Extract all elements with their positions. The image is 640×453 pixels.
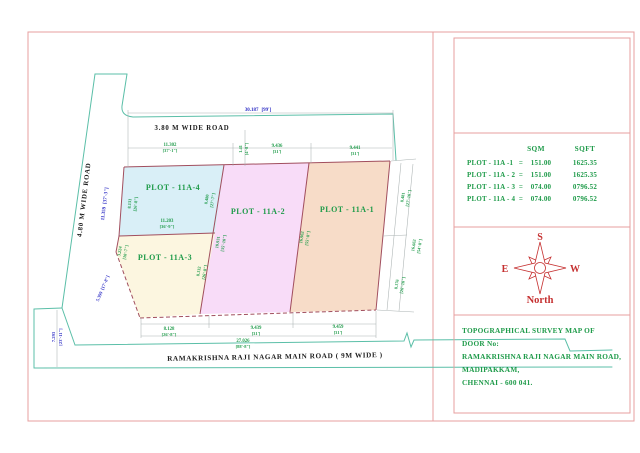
panel-empty-box [454,38,630,133]
left-road-label: 4.80 M WIDE ROAD [76,162,92,237]
plot-11a-4-label: PLOT - 11A-4 [146,183,200,192]
table-header-sqm: SQM [527,144,545,153]
svg-text:[4'-8"]: [4'-8"] [244,142,249,155]
svg-text:PLOT - 11A - 4: PLOT - 11A - 4 [467,195,515,203]
plot-11a-2-label: PLOT - 11A-2 [231,207,285,216]
table-row: PLOT - 11A - 3 = 074.00 0796.52 [467,183,597,191]
dim-right-bottom: 8.176 [26'-10"] [393,275,407,294]
dim-bot-total-ft: [88'-8"] [236,344,251,349]
dim-top-c-ft: [31'] [351,151,360,156]
svg-text:151.00: 151.00 [531,159,552,167]
table-header-sqft: SQFT [575,144,596,153]
compass-north-label: North [527,295,554,306]
title-line-1: TOPOGRAPHICAL SURVEY MAP OF [462,326,595,335]
dim-top-a-ft: [37'-1"] [163,148,178,153]
svg-text:0796.52: 0796.52 [573,183,597,191]
table-row: PLOT - 11A - 4 = 074.00 0796.52 [467,195,597,203]
svg-text:151.00: 151.00 [531,171,552,179]
survey-map-sheet: 3.80 M WIDE ROAD 4.80 M WIDE ROAD RAMAKR… [0,0,640,453]
dim-left-road: 11.359[37'-3"] [101,187,110,221]
dim-right-mid: 16.662 [54'-8"] [410,237,423,254]
dim-p4-bottom-ft: [36'-9"] [160,224,175,229]
area-table: SQM SQFT PLOT - 11A -1 = 151.00 1625.35 … [467,144,597,203]
dim-bot-c-ft: [31'] [334,330,343,335]
table-row: PLOT - 11A - 2 = 151.00 1625.35 [467,171,597,179]
dim-top-b-ft: [31'] [273,149,282,154]
compass-right-label: W [570,264,580,275]
compass-hub [535,263,546,274]
svg-text:0796.52: 0796.52 [573,195,597,203]
svg-text:=: = [519,171,523,179]
svg-text:1625.35: 1625.35 [573,171,597,179]
svg-text:PLOT - 11A - 2: PLOT - 11A - 2 [467,171,515,179]
svg-text:=: = [519,195,523,203]
dim-top-total: 30.187[99'] [245,108,272,113]
svg-text:[23'-11"]: [23'-11"] [58,328,63,346]
compass-top-label: S [537,232,543,243]
svg-text:7.293: 7.293 [51,331,56,342]
svg-text:1625.35: 1625.35 [573,159,597,167]
svg-text:[54'-8"]: [54'-8"] [416,238,423,254]
dim-top-gap: 1.41 [4'-8"] [238,142,249,155]
dim-bot-a-ft: [26'-8"] [162,332,177,337]
svg-text:[26'-10"]: [26'-10"] [399,276,407,294]
dim-right-top: 8.481 [27'-10"] [399,188,413,207]
title-line-4: MADIPAKKAM, [462,365,520,374]
svg-text:074.00: 074.00 [531,195,552,203]
dim-bot-b-ft: [31'] [252,331,261,336]
svg-text:PLOT - 11A - 3: PLOT - 11A - 3 [467,183,515,191]
svg-text:=: = [519,159,523,167]
svg-text:8.131: 8.131 [127,198,133,208]
svg-text:074.00: 074.00 [531,183,552,191]
top-road-label: 3.80 M WIDE ROAD [155,125,230,132]
svg-text:PLOT - 11A -1: PLOT - 11A -1 [467,159,514,167]
bottom-road-label: RAMAKRISHNA RAJI NAGAR MAIN ROAD ( 9M WI… [167,351,383,363]
table-row: PLOT - 11A -1 = 151.00 1625.35 [467,159,597,167]
plot-11a-1-label: PLOT - 11A-1 [320,205,374,214]
svg-text:1.41: 1.41 [238,145,243,153]
svg-text:=: = [519,183,523,191]
title-line-2: DOOR No: [462,339,499,348]
dim-divider-2-1: 16.962 [55'-8"] [298,229,311,246]
compass-left-label: E [502,264,509,275]
dim-left-diagonal: 5.399[17'-8"] [95,274,111,302]
svg-text:[27'-10"]: [27'-10"] [405,189,413,207]
title-line-5: CHENNAI - 600 041. [462,378,533,387]
title-line-3: RAMAKRISHNA RAJI NAGAR MAIN ROAD, [462,352,621,361]
compass-rose: S E W North [502,232,580,306]
title-block: TOPOGRAPHICAL SURVEY MAP OF DOOR No: RAM… [462,326,621,387]
plot-11a-3-label: PLOT - 11A-3 [138,253,192,262]
survey-drawing: 3.80 M WIDE ROAD 4.80 M WIDE ROAD RAMAKR… [0,0,640,453]
